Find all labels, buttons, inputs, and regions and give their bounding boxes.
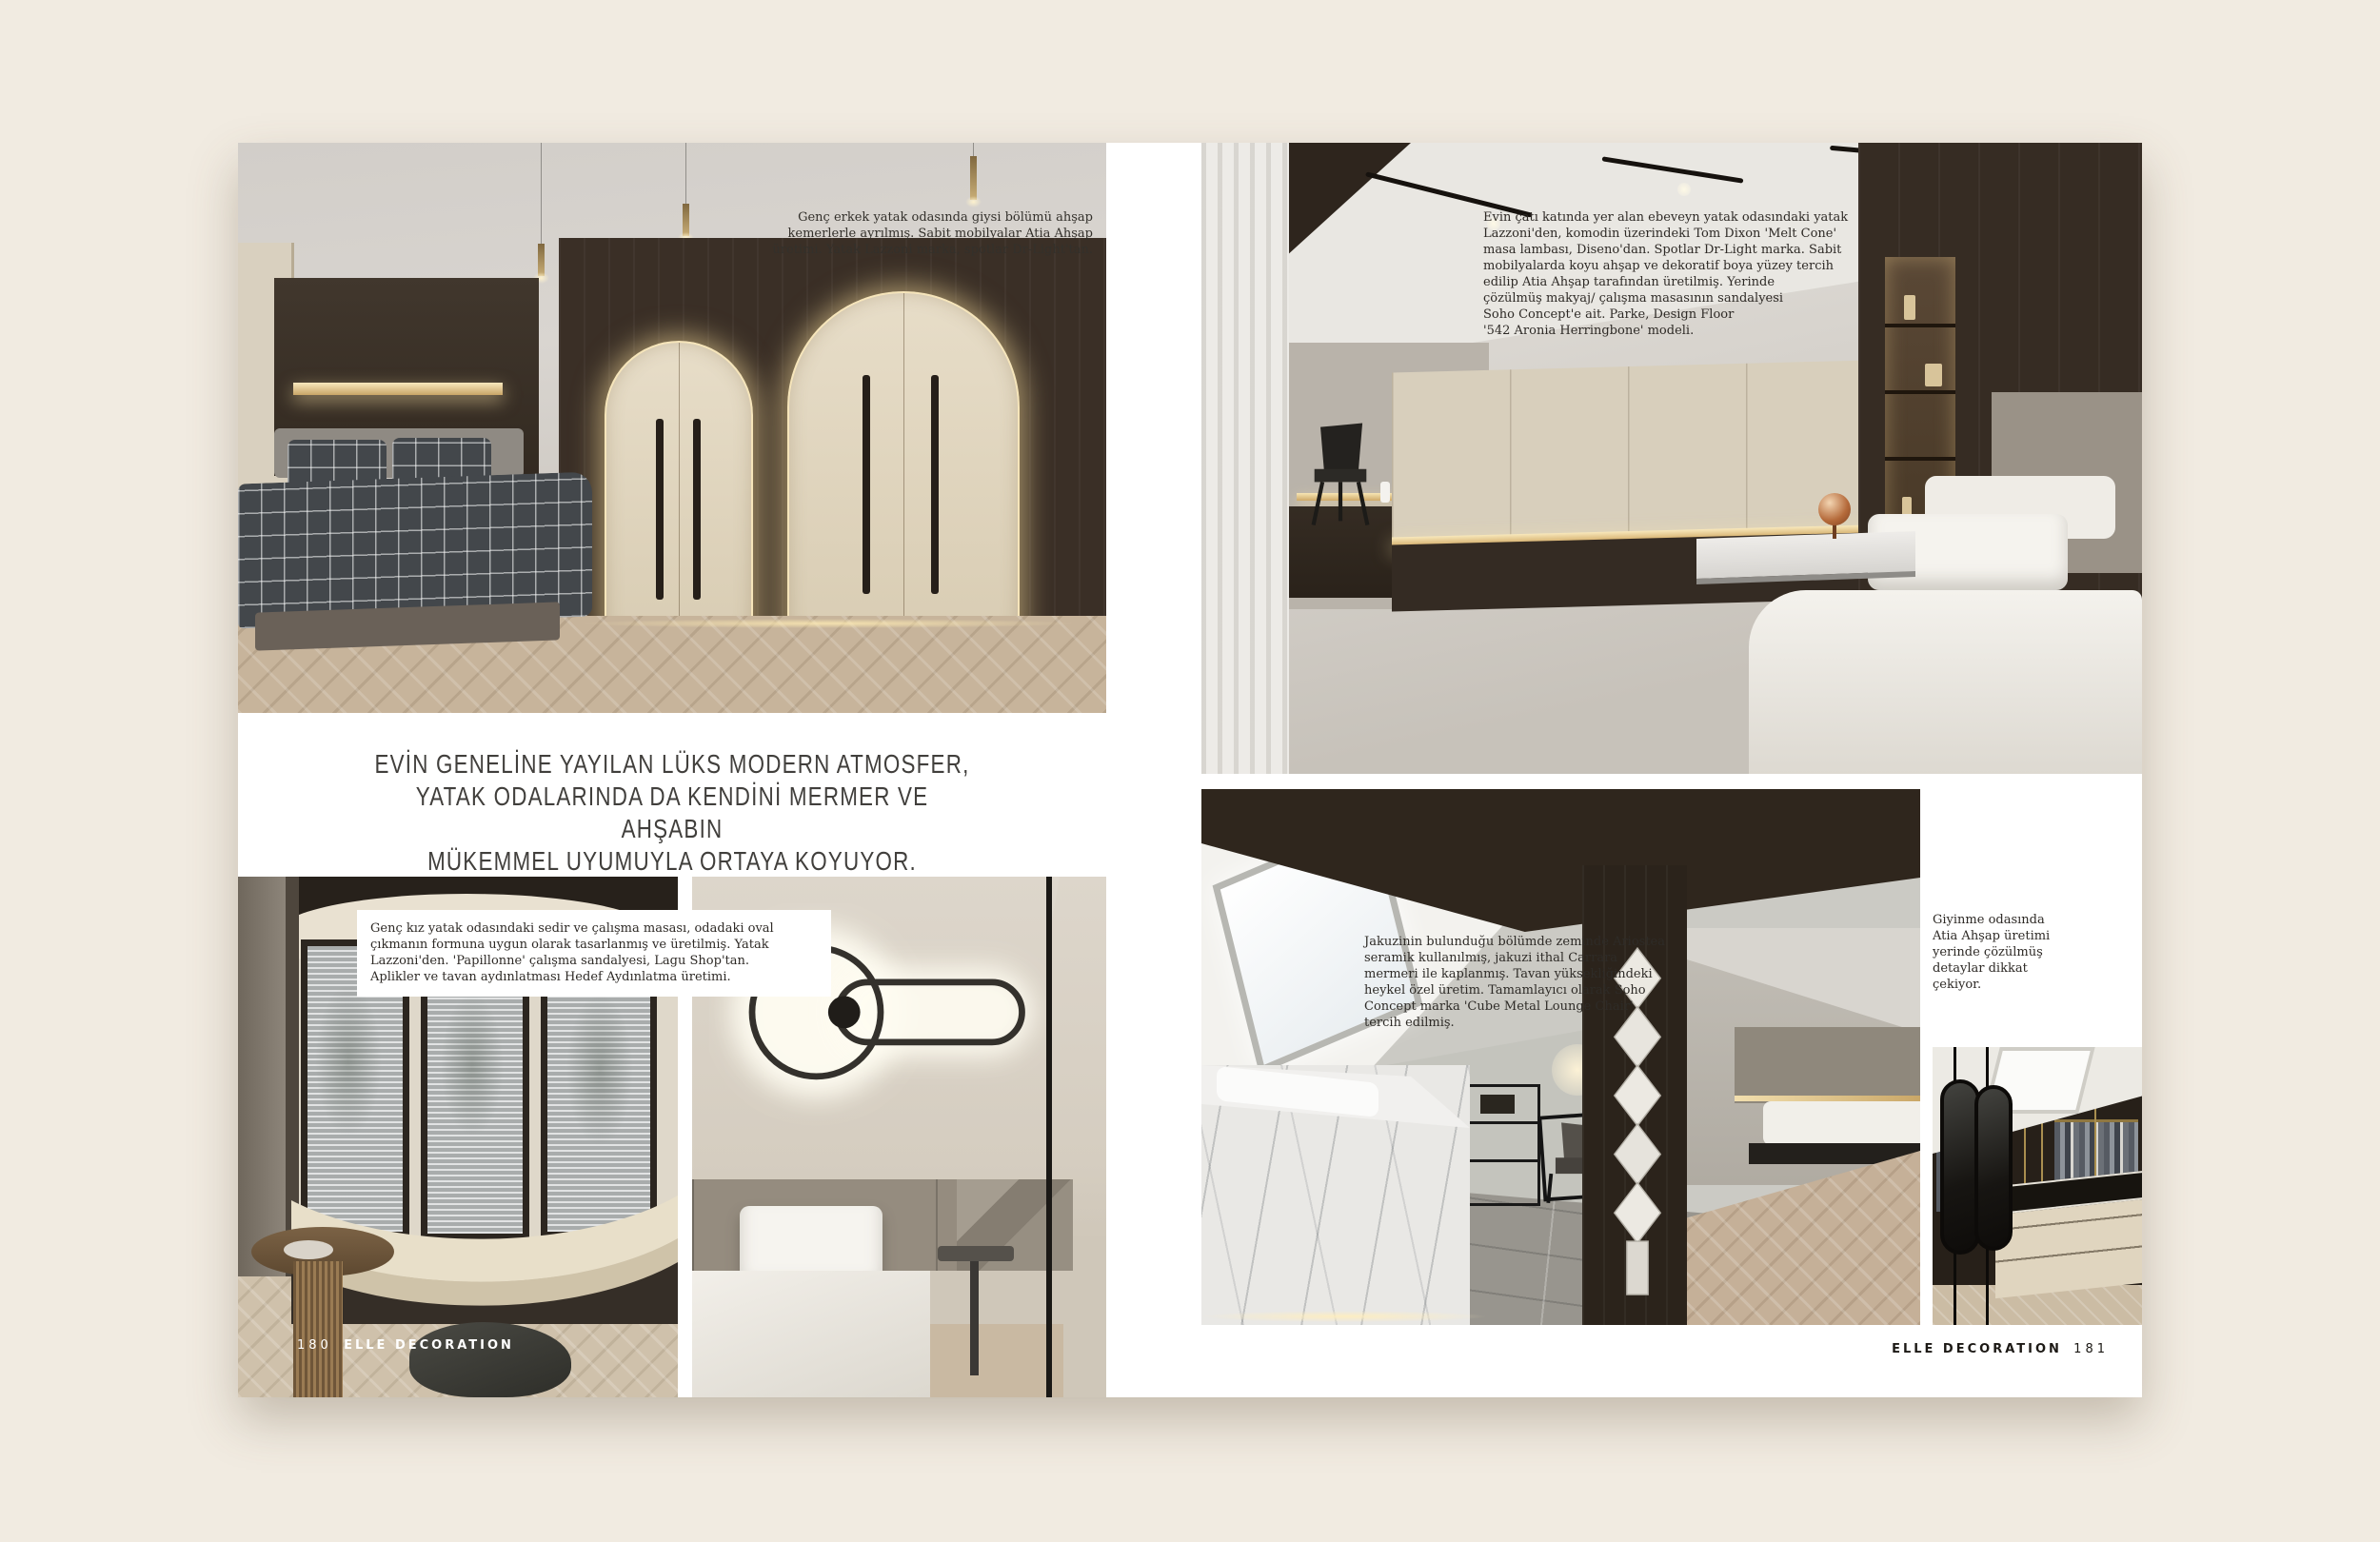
wardrobe-arch-right [787, 291, 1020, 637]
dark-glass-panel [1052, 877, 1106, 1397]
copper-table-lamp [1818, 493, 1851, 525]
caption-girls-bedroom: Genç kız yatak odasındaki sedir ve çalış… [357, 910, 831, 997]
magazine-page-background: Genç erkek yatak odasında giysi bölümü a… [0, 0, 2380, 1542]
pendant-light [538, 244, 545, 276]
tree-silhouette [566, 994, 633, 1146]
magazine-brand-right: ELLE DECORATION [1892, 1342, 2062, 1356]
wardrobe-handle [931, 375, 939, 594]
side-table-leg [970, 1261, 979, 1375]
wardrobe-seam [903, 293, 904, 635]
wardrobe-handle [863, 375, 870, 594]
pendant-wire [541, 143, 542, 246]
shelf-decor-item [1925, 364, 1942, 386]
pendant-light [970, 156, 977, 200]
shelf [1885, 390, 1955, 394]
magazine-spread: Genç erkek yatak odasında giysi bölümü a… [238, 143, 2142, 1397]
bed-duvet [692, 1271, 930, 1397]
pendant-light [683, 204, 689, 236]
far-headboard-wall [1735, 1027, 1920, 1103]
arched-wood-panel [559, 238, 1106, 633]
wardrobe-handle [693, 419, 701, 600]
pendant-wire [685, 143, 686, 206]
marble-ledge [1696, 531, 1915, 584]
caption-dressing-room: Giyinme odasında Atia Ahşap üretimi yeri… [1933, 912, 2128, 993]
spot-glow [1677, 183, 1691, 196]
tree-silhouette [315, 984, 382, 1137]
footer-right: ELLE DECORATION 181 [1892, 1342, 2109, 1356]
wardrobe-seam [679, 343, 680, 635]
headline: EVİN GENELİNE YAYILAN LÜKS MODERN ATMOSF… [367, 748, 977, 878]
step-light-glow [1201, 1311, 1487, 1322]
page-number-left: 180 [297, 1338, 332, 1353]
shelf [1885, 457, 1955, 461]
shelf-box [1480, 1095, 1515, 1114]
fluted-table-column [293, 1261, 343, 1397]
caption-boys-bedroom: Genç erkek yatak odasında giysi bölümü a… [769, 209, 1093, 258]
shelf-decor-item [1904, 295, 1915, 320]
desk-object [1380, 482, 1390, 503]
table-lamp-stem [1833, 524, 1836, 539]
footer-left: 180 ELLE DECORATION [297, 1338, 514, 1353]
page-number-right: 181 [2073, 1342, 2109, 1356]
oval-mirror [1974, 1085, 2013, 1251]
photo-dressing-room [1933, 1047, 2142, 1325]
wardrobe-handle [656, 419, 664, 600]
magazine-brand-left: ELLE DECORATION [344, 1338, 514, 1353]
lit-niche [293, 383, 503, 395]
sheer-curtain [1201, 143, 1289, 774]
caption-master-bedroom: Evin çatı katında yer alan ebeveyn yatak… [1483, 209, 1902, 339]
marble-coaster [284, 1240, 333, 1259]
floor-light-glow [581, 619, 1076, 628]
wardrobe-arch-left [605, 341, 753, 637]
far-bed [1763, 1101, 1920, 1145]
desk-chair [1300, 419, 1380, 529]
photo-boys-bedroom: Genç erkek yatak odasında giysi bölümü a… [238, 143, 1106, 713]
photo-jacuzzi-attic: Jakuzinin bulunduğu bölümde zeminde Ario… [1201, 789, 1920, 1325]
tree-silhouette [441, 994, 504, 1137]
bed-duvet [1749, 590, 2142, 774]
side-table-top [938, 1246, 1014, 1261]
cream-wardrobe-wall [1392, 360, 1868, 544]
wood-floor [930, 1324, 1063, 1397]
caption-jacuzzi: Jakuzinin bulunduğu bölümde zeminde Ario… [1364, 934, 1683, 1031]
photo-master-bedroom: Evin çatı katında yer alan ebeveyn yatak… [1201, 143, 2142, 774]
